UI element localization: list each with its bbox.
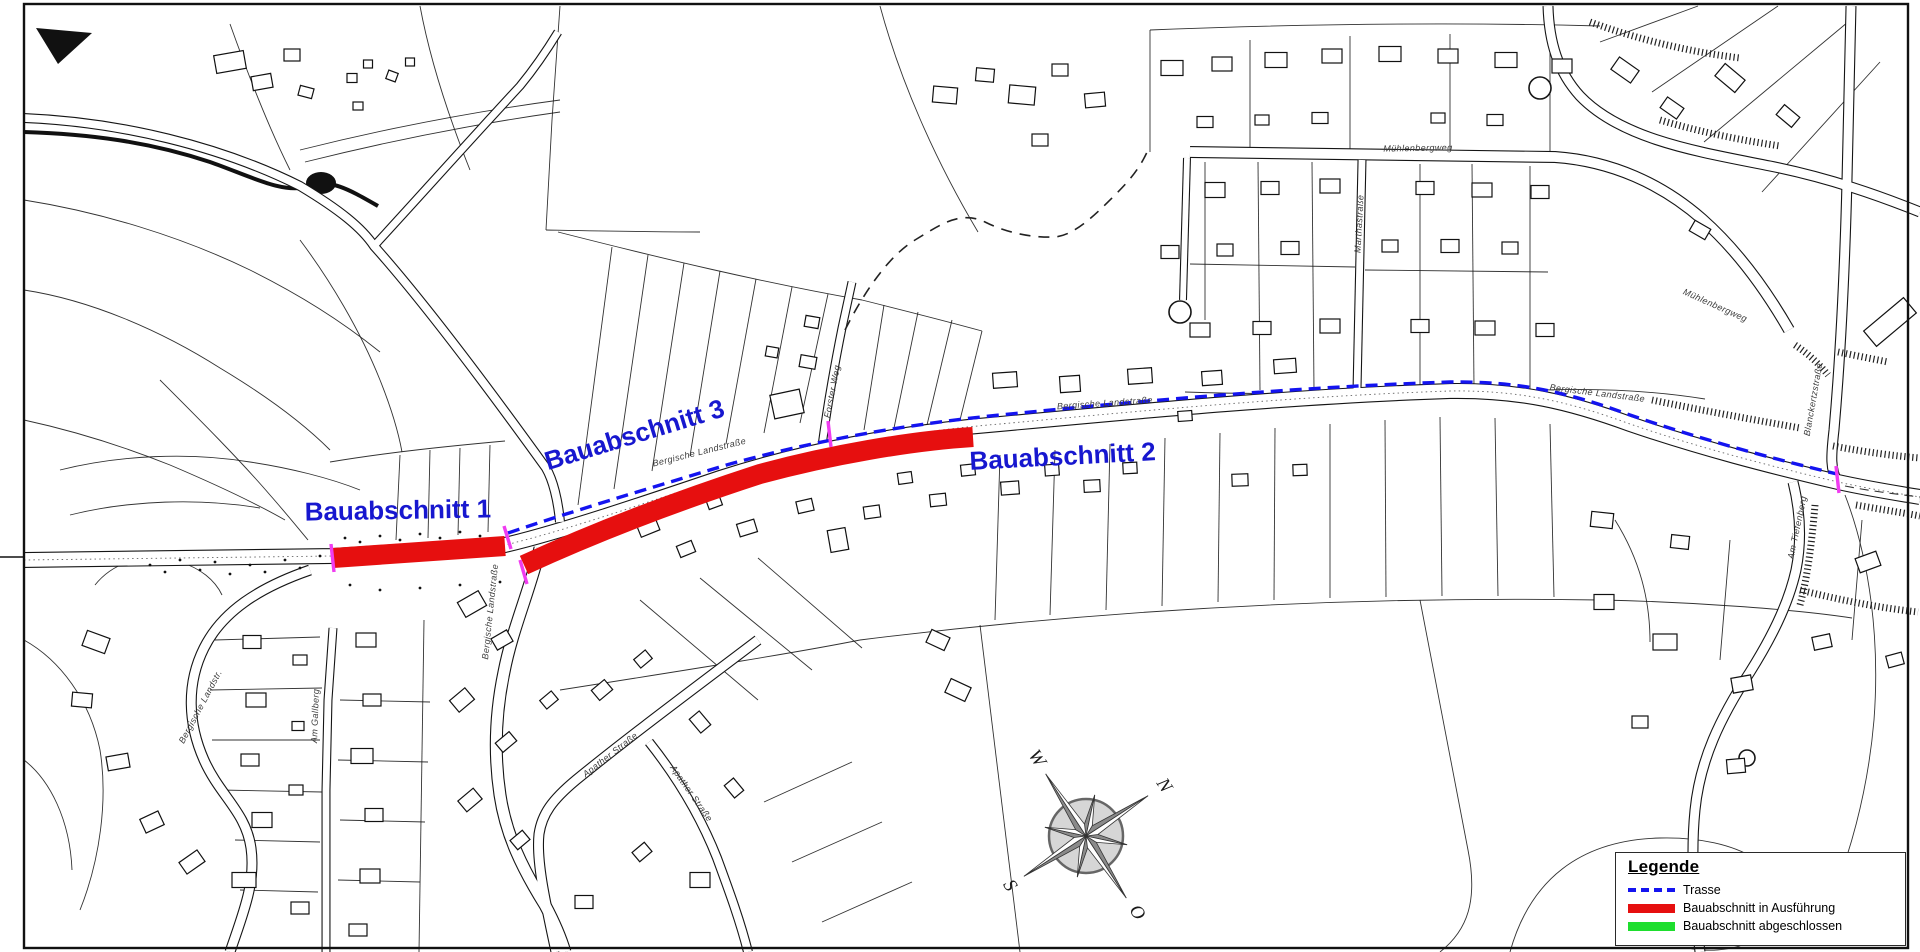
building xyxy=(243,636,261,649)
parcel-boundary-line xyxy=(792,822,882,862)
map-legend: Legende Trasse Bauabschnitt in Ausführun… xyxy=(1615,852,1906,946)
building xyxy=(140,811,164,833)
parcel-boundary-line xyxy=(1106,444,1110,610)
street-name-label: Blanckertzstraße xyxy=(1802,362,1825,437)
building xyxy=(1008,85,1035,105)
tree-dot xyxy=(379,589,382,592)
building xyxy=(1670,535,1689,550)
building xyxy=(1382,240,1398,252)
parcel-boundary-line xyxy=(578,247,612,505)
building xyxy=(804,315,820,328)
street-name-label: Am Tiefenberg xyxy=(1785,495,1808,561)
building xyxy=(689,711,711,733)
building xyxy=(1265,53,1287,68)
building xyxy=(676,540,695,557)
done-section-swatch xyxy=(1628,922,1675,931)
building xyxy=(1084,92,1105,108)
parcel-boundary-line xyxy=(1852,520,1862,640)
building xyxy=(799,355,817,370)
building xyxy=(106,753,130,771)
embankment-hatching xyxy=(1856,505,1920,516)
parcel-boundary-line xyxy=(1150,24,1600,30)
building xyxy=(1660,97,1684,119)
road-surface xyxy=(1183,158,1187,300)
parcel-boundary-line xyxy=(305,112,560,162)
building xyxy=(632,842,652,861)
embankment-hatching xyxy=(1800,590,1918,612)
building xyxy=(926,629,950,650)
parcel-boundary-line xyxy=(726,279,756,444)
legend-item-label: Trasse xyxy=(1683,883,1721,897)
building xyxy=(1590,511,1613,528)
building xyxy=(365,809,383,822)
road-circle-feature xyxy=(1529,77,1551,99)
tree-dot xyxy=(284,559,287,562)
parcel-boundary-line xyxy=(300,100,560,150)
building xyxy=(1001,481,1020,495)
embankment-hatching xyxy=(1652,400,1800,428)
building xyxy=(1812,634,1832,650)
building xyxy=(351,749,373,764)
road-casing xyxy=(1548,6,1920,212)
building xyxy=(1487,115,1503,126)
construction-plan-map: Bergische LandstraßeBergische Landstraße… xyxy=(0,0,1920,952)
parcel-boundary-line xyxy=(60,456,360,490)
building xyxy=(1431,113,1445,123)
tree-dot xyxy=(359,541,362,544)
parcel-boundary-line xyxy=(24,760,72,870)
parcel-boundary-line xyxy=(758,558,862,648)
tree-dot xyxy=(264,571,267,574)
building xyxy=(1281,242,1299,255)
building xyxy=(1293,464,1307,475)
building xyxy=(1052,64,1068,76)
parcel-boundary-line xyxy=(220,790,322,792)
building xyxy=(386,70,398,82)
building xyxy=(724,778,743,798)
building xyxy=(292,722,304,731)
embankment-hatching xyxy=(1838,352,1888,362)
tree-dot xyxy=(299,567,302,570)
building xyxy=(1438,49,1458,63)
tree-dot xyxy=(459,584,462,587)
road-surface xyxy=(538,640,758,952)
street-name-label: Forster Weg xyxy=(822,364,842,419)
tree-dot xyxy=(399,539,402,542)
building xyxy=(179,850,205,874)
building xyxy=(214,51,247,74)
parcel-boundary-line xyxy=(862,300,982,331)
parcel-boundary-line xyxy=(700,578,812,670)
parcel-boundary-line xyxy=(1385,420,1386,597)
building xyxy=(1205,183,1225,198)
parcel-boundary-line xyxy=(1190,264,1355,267)
tree-dot xyxy=(214,561,217,564)
tree-dot xyxy=(419,587,422,590)
parcel-boundary-line xyxy=(24,200,380,352)
tree-dot xyxy=(199,569,202,572)
building xyxy=(1611,57,1639,83)
building xyxy=(1379,47,1401,62)
building xyxy=(1632,716,1648,728)
building xyxy=(298,85,314,98)
parcel-boundary-line xyxy=(860,599,1852,640)
building xyxy=(1320,319,1340,333)
tree-dot xyxy=(249,564,252,567)
building xyxy=(1084,480,1101,493)
building xyxy=(360,869,380,883)
parcel-boundary-line xyxy=(1312,162,1314,390)
tree-dot xyxy=(379,535,382,538)
building xyxy=(1715,64,1745,93)
building xyxy=(293,655,307,665)
bauabschnitt-3-label: Bauabschnitt 3 xyxy=(541,393,728,476)
parcel-boundary-line xyxy=(1440,417,1442,596)
parcel-boundary-line xyxy=(1258,162,1260,390)
building xyxy=(1128,368,1153,385)
map-canvas: Bergische LandstraßeBergische Landstraße… xyxy=(0,0,1920,952)
parcel-boundary-line xyxy=(927,320,952,425)
building xyxy=(1161,246,1179,259)
building xyxy=(1178,411,1193,422)
tree-dot xyxy=(419,533,422,536)
building xyxy=(1161,61,1183,76)
compass-letter-N: N xyxy=(1151,773,1177,797)
street-name-label: Am Gallberg xyxy=(309,689,321,745)
building xyxy=(291,902,309,914)
building xyxy=(1472,183,1492,197)
building xyxy=(897,472,912,485)
parcel-boundary-line xyxy=(1365,270,1548,272)
parcel-boundary-line xyxy=(546,230,700,232)
building xyxy=(82,630,110,653)
building xyxy=(1274,358,1297,374)
building xyxy=(1726,758,1745,774)
legend-title: Legende xyxy=(1628,857,1905,877)
building xyxy=(736,519,757,537)
parcel-boundary-line xyxy=(210,688,322,690)
building xyxy=(863,505,881,519)
parcel-boundary-line xyxy=(995,455,1000,620)
building xyxy=(1190,323,1210,337)
building xyxy=(289,785,303,795)
building xyxy=(1531,186,1549,199)
parcel-boundary-line xyxy=(340,700,430,702)
building xyxy=(540,691,559,709)
street-name-label: Mühlenbergweg xyxy=(1383,142,1452,153)
road-casing xyxy=(649,742,748,952)
building xyxy=(1594,595,1614,610)
building xyxy=(241,754,259,766)
parcel-boundary-line xyxy=(1495,418,1498,596)
tree-dot xyxy=(479,535,482,538)
legend-item-done: Bauabschnitt abgeschlossen xyxy=(1628,917,1905,935)
building xyxy=(1502,242,1518,254)
parcel-boundary-line xyxy=(960,331,982,420)
building xyxy=(251,73,273,90)
parcel-boundary-line xyxy=(1550,424,1554,597)
parcel-boundary-line xyxy=(558,232,862,300)
building xyxy=(458,788,482,812)
building xyxy=(796,498,814,513)
construction-section-band xyxy=(333,546,505,558)
building xyxy=(406,58,415,66)
building xyxy=(575,896,593,909)
building xyxy=(591,680,612,701)
building xyxy=(1261,182,1279,195)
embankment-hatching xyxy=(1590,22,1740,58)
building xyxy=(945,679,971,702)
parcel-boundary-line xyxy=(70,502,260,515)
building xyxy=(1212,57,1232,71)
building xyxy=(827,528,849,553)
building xyxy=(1032,134,1048,146)
legend-item-label: Bauabschnitt in Ausführung xyxy=(1683,901,1835,915)
parcel-boundary-line xyxy=(980,625,1020,952)
street-name-label: Apather Straße xyxy=(580,730,639,780)
building xyxy=(457,591,486,618)
road-circle-feature xyxy=(1169,301,1191,323)
parcel-boundary-line xyxy=(24,640,103,910)
parcel-boundary-line xyxy=(215,637,320,640)
parcel-boundary-line xyxy=(1472,164,1474,388)
building xyxy=(1202,370,1223,385)
compass-letter-O: O xyxy=(1125,901,1150,924)
building xyxy=(363,694,381,706)
parcel-boundary-line xyxy=(1218,433,1220,602)
building xyxy=(1731,675,1753,693)
building xyxy=(929,493,946,507)
tree-dot xyxy=(499,581,502,584)
building xyxy=(284,49,300,61)
building xyxy=(1217,244,1233,256)
bauabschnitt-1-label: Bauabschnitt 1 xyxy=(304,493,491,526)
building xyxy=(1253,322,1271,335)
building xyxy=(1320,179,1340,193)
parcel-boundary-line xyxy=(764,762,852,802)
building xyxy=(1475,321,1495,335)
parcel-boundary-line xyxy=(864,305,884,430)
building xyxy=(347,74,357,83)
building xyxy=(690,873,710,888)
boundary-dashed-line xyxy=(845,150,1148,330)
parcel-boundary-line xyxy=(1274,428,1275,600)
parcel-boundary-line xyxy=(1615,520,1650,642)
building xyxy=(356,633,376,647)
building xyxy=(1197,117,1213,128)
building xyxy=(252,813,272,828)
legend-item-trasse: Trasse xyxy=(1628,881,1905,899)
tree-dot xyxy=(319,555,322,558)
building xyxy=(1495,53,1517,68)
building xyxy=(1059,375,1080,392)
parcel-boundary-line xyxy=(230,24,290,170)
building xyxy=(975,68,994,83)
road-casing xyxy=(538,640,758,952)
compass-letter-S: S xyxy=(998,876,1021,896)
building xyxy=(1653,634,1677,650)
legend-item-active: Bauabschnitt in Ausführung xyxy=(1628,899,1905,917)
tree-dot xyxy=(164,571,167,574)
tree-dot xyxy=(149,564,152,567)
building xyxy=(364,60,373,68)
building xyxy=(1441,240,1459,253)
parcel-boundary-line xyxy=(1720,540,1730,660)
parcel-boundary-line xyxy=(1420,600,1472,952)
building xyxy=(1776,105,1800,128)
parcel-boundary-line xyxy=(330,441,505,462)
building xyxy=(993,372,1018,389)
building xyxy=(450,688,475,712)
building xyxy=(1536,324,1554,337)
building xyxy=(1416,182,1434,195)
building xyxy=(765,346,779,358)
building xyxy=(232,873,256,888)
building xyxy=(1411,320,1429,333)
parcel-boundary-line xyxy=(419,620,424,952)
building xyxy=(349,924,367,936)
building xyxy=(1886,652,1905,668)
building xyxy=(770,389,804,419)
legend-item-label: Bauabschnitt abgeschlossen xyxy=(1683,919,1842,933)
tree-dot xyxy=(439,537,442,540)
parcel-boundary-line xyxy=(1600,6,1698,42)
tree-dot xyxy=(179,559,182,562)
street-name-label: Mühlenbergweg xyxy=(1682,287,1749,324)
active-section-swatch xyxy=(1628,904,1675,913)
tree-dot xyxy=(459,531,462,534)
building xyxy=(634,650,653,668)
trasse-dashed-swatch xyxy=(1628,888,1675,892)
parcel-boundary-line xyxy=(822,882,912,922)
building xyxy=(1312,113,1328,124)
tree-dot xyxy=(229,573,232,576)
road-surface xyxy=(649,742,748,952)
building xyxy=(1232,474,1248,487)
building xyxy=(932,86,957,104)
parcel-boundary-line xyxy=(300,240,402,452)
dark-wedge xyxy=(36,28,92,64)
parcel-boundary-line xyxy=(24,420,285,520)
building xyxy=(1255,115,1269,125)
building xyxy=(353,102,363,110)
parcel-boundary-line xyxy=(24,290,330,450)
compass-letter-W: W xyxy=(1024,746,1051,773)
building xyxy=(71,692,92,708)
tree-dot xyxy=(349,584,352,587)
parcel-boundary-line xyxy=(1162,438,1165,606)
building xyxy=(1552,59,1572,73)
tree-dot xyxy=(344,537,347,540)
parcel-boundary-line xyxy=(894,312,918,428)
road-surface xyxy=(1832,6,1851,483)
parcel-boundary-line xyxy=(880,6,978,232)
building xyxy=(1322,49,1342,63)
building xyxy=(246,693,266,707)
